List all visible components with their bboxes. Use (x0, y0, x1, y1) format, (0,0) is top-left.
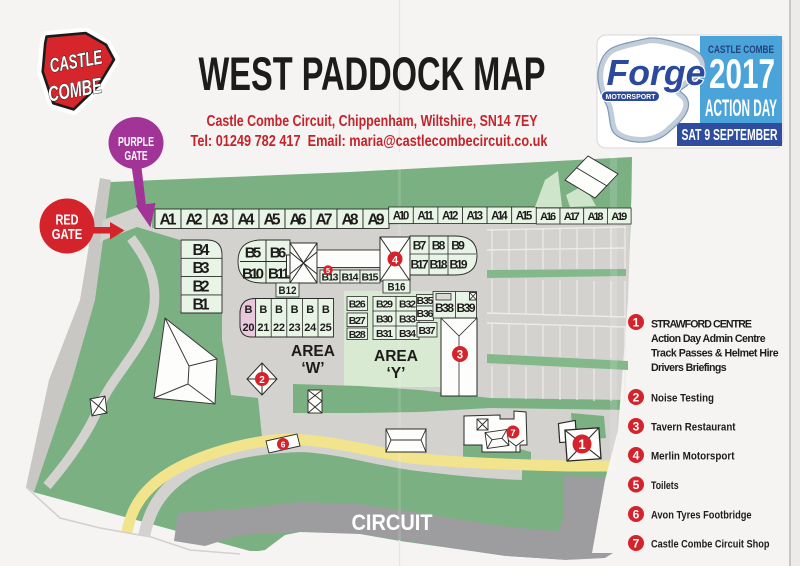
svg-text:B14: B14 (342, 272, 359, 284)
svg-text:B31: B31 (376, 328, 393, 340)
svg-text:A5: A5 (264, 212, 281, 229)
svg-text:B: B (245, 304, 253, 316)
svg-text:5: 5 (326, 266, 330, 275)
svg-text:A13: A13 (467, 211, 484, 223)
svg-text:23: 23 (289, 322, 301, 334)
svg-text:B: B (259, 304, 267, 316)
svg-text:3: 3 (633, 420, 640, 434)
svg-text:GATE: GATE (52, 226, 83, 243)
svg-text:B19: B19 (450, 258, 468, 272)
svg-text:B4: B4 (193, 242, 210, 259)
svg-text:A7: A7 (316, 212, 333, 229)
svg-text:2: 2 (259, 375, 265, 386)
svg-text:B35: B35 (417, 295, 434, 307)
svg-text:A12: A12 (442, 211, 459, 223)
svg-text:B: B (306, 304, 314, 316)
svg-text:Castle Combe Circuit Shop: Castle Combe Circuit Shop (651, 539, 770, 551)
svg-text:6: 6 (281, 440, 286, 450)
svg-text:B18: B18 (430, 258, 448, 272)
svg-text:B7: B7 (413, 239, 427, 253)
svg-text:B10: B10 (242, 266, 264, 283)
svg-text:A11: A11 (417, 211, 434, 223)
svg-text:2: 2 (633, 391, 640, 405)
svg-text:Action Day Admin Centre: Action Day Admin Centre (651, 333, 766, 345)
svg-text:Noise Testing: Noise Testing (651, 393, 714, 405)
svg-text:7: 7 (510, 428, 515, 439)
svg-text:B15: B15 (362, 272, 379, 284)
svg-text:Tel: 01249 782 417 Email: mar: Tel: 01249 782 417 Email: maria@castleco… (191, 133, 548, 150)
svg-text:A16: A16 (540, 211, 556, 223)
svg-text:GATE: GATE (125, 148, 148, 163)
svg-text:B12: B12 (279, 285, 297, 297)
svg-text:‘W’: ‘W’ (301, 360, 324, 377)
svg-text:Track Passes & Helmet Hire: Track Passes & Helmet Hire (651, 348, 779, 360)
svg-text:B26: B26 (349, 299, 366, 311)
svg-text:B5: B5 (245, 245, 262, 262)
svg-text:4: 4 (392, 255, 399, 267)
svg-text:ACTION DAY: ACTION DAY (705, 95, 777, 122)
svg-text:A3: A3 (212, 212, 229, 229)
svg-text:B1: B1 (193, 297, 210, 314)
svg-text:B17: B17 (411, 258, 429, 272)
svg-text:SAT 9 SEPTEMBER: SAT 9 SEPTEMBER (682, 127, 778, 144)
svg-text:B: B (322, 304, 330, 316)
svg-text:5: 5 (633, 478, 640, 492)
svg-text:B2: B2 (193, 279, 210, 296)
svg-text:3: 3 (457, 350, 463, 362)
svg-text:A9: A9 (368, 212, 385, 229)
svg-text:B33: B33 (399, 314, 416, 326)
svg-text:B: B (291, 304, 299, 316)
svg-text:A10: A10 (393, 211, 410, 223)
svg-text:20: 20 (243, 322, 255, 334)
svg-text:CIRCUIT: CIRCUIT (352, 510, 434, 535)
svg-text:B32: B32 (399, 299, 416, 311)
svg-text:A17: A17 (564, 211, 580, 223)
svg-text:2017: 2017 (709, 50, 775, 97)
svg-text:B8: B8 (432, 239, 446, 253)
svg-text:Merlin Motorsport: Merlin Motorsport (651, 451, 735, 463)
svg-text:PURPLE: PURPLE (118, 134, 154, 149)
svg-text:B36: B36 (417, 308, 434, 320)
svg-text:B34: B34 (399, 328, 416, 340)
svg-text:AREA: AREA (374, 348, 418, 365)
svg-text:A6: A6 (290, 212, 307, 229)
svg-text:B3: B3 (193, 260, 210, 277)
svg-text:A1: A1 (160, 212, 177, 229)
svg-text:Avon Tyres Footbridge: Avon Tyres Footbridge (651, 510, 752, 522)
svg-text:B38: B38 (435, 301, 454, 315)
svg-text:6: 6 (633, 508, 640, 522)
svg-text:21: 21 (257, 322, 269, 334)
svg-text:B29: B29 (376, 299, 393, 311)
svg-text:STRAWFORD CENTRE: STRAWFORD CENTRE (651, 319, 752, 331)
svg-text:B37: B37 (419, 325, 436, 337)
svg-text:7: 7 (633, 537, 640, 551)
svg-text:A19: A19 (611, 211, 627, 223)
svg-text:A18: A18 (588, 211, 604, 223)
svg-text:22: 22 (273, 322, 285, 334)
svg-text:A4: A4 (238, 212, 255, 229)
svg-text:Forge: Forge (607, 52, 706, 93)
svg-text:B28: B28 (349, 329, 366, 341)
svg-text:Drivers Briefings: Drivers Briefings (651, 362, 727, 374)
svg-text:B39: B39 (457, 301, 476, 315)
svg-text:B: B (275, 304, 283, 316)
svg-text:MOTORSPORT: MOTORSPORT (606, 92, 656, 101)
svg-text:‘Y’: ‘Y’ (387, 365, 406, 382)
svg-text:1: 1 (633, 316, 640, 330)
svg-text:1: 1 (578, 437, 586, 452)
svg-text:B9: B9 (451, 239, 465, 253)
svg-text:B16: B16 (388, 282, 406, 294)
svg-text:Toilets: Toilets (651, 480, 679, 492)
svg-text:A14: A14 (491, 211, 508, 223)
svg-text:24: 24 (304, 322, 317, 334)
svg-text:B30: B30 (376, 314, 393, 326)
svg-text:25: 25 (320, 322, 332, 334)
svg-text:Castle Combe Circuit, Chippenh: Castle Combe Circuit, Chippenham, Wiltsh… (207, 113, 538, 130)
svg-text:A8: A8 (342, 212, 359, 229)
svg-text:B27: B27 (349, 315, 366, 327)
svg-text:A2: A2 (186, 212, 203, 229)
svg-text:A15: A15 (516, 211, 533, 223)
svg-text:B6: B6 (270, 245, 287, 262)
svg-text:Tavern Restaurant: Tavern Restaurant (651, 422, 736, 434)
svg-text:4: 4 (633, 449, 640, 463)
svg-text:WEST PADDOCK MAP: WEST PADDOCK MAP (199, 48, 546, 101)
svg-text:AREA: AREA (291, 343, 335, 360)
